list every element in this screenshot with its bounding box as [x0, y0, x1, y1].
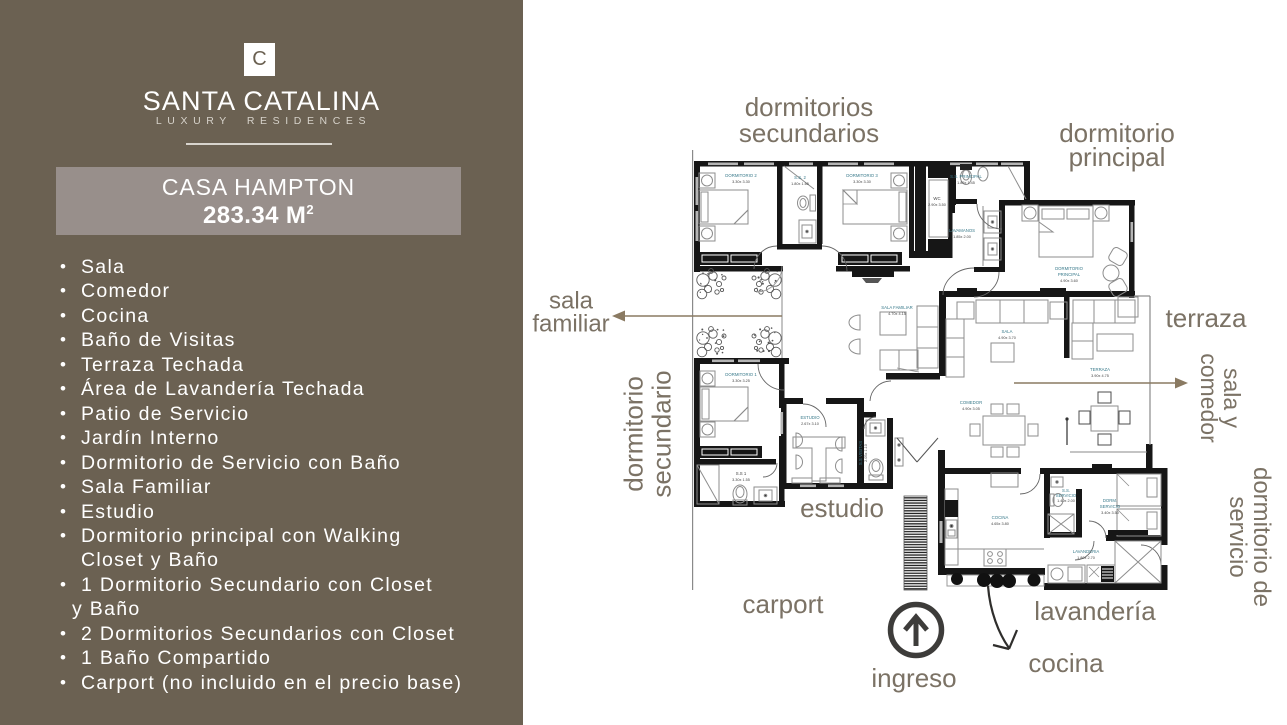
svg-text:S.S. PRINCIPAL: S.S. PRINCIPAL: [950, 174, 982, 179]
svg-text:3.90x 4.75: 3.90x 4.75: [1091, 374, 1109, 378]
svg-text:4.70x 4.15: 4.70x 4.15: [888, 312, 906, 316]
svg-text:WC: WC: [933, 196, 940, 201]
svg-text:3.40x 3.50: 3.40x 3.50: [1101, 511, 1119, 515]
svg-text:DORM.: DORM.: [1103, 498, 1117, 503]
svg-text:SERVICIO: SERVICIO: [1100, 504, 1121, 509]
svg-text:COMEDOR: COMEDOR: [960, 400, 982, 405]
svg-text:SALA FAMILIAR: SALA FAMILIAR: [881, 305, 913, 310]
svg-text:1.85x 2.00: 1.85x 2.00: [953, 235, 971, 239]
svg-text:DORMITORIO 3: DORMITORIO 3: [846, 173, 878, 178]
svg-text:LAVANDERIA: LAVANDERIA: [1073, 549, 1100, 554]
svg-text:DORMITORIO: DORMITORIO: [1055, 266, 1084, 271]
svg-text:SERVICIO: SERVICIO: [1056, 493, 1077, 498]
svg-text:TERRAZA: TERRAZA: [1090, 367, 1110, 372]
svg-text:3.30x 3.25: 3.30x 3.25: [732, 379, 750, 383]
svg-text:4.65x 3.80: 4.65x 3.80: [991, 522, 1009, 526]
svg-text:S.S. 2: S.S. 2: [794, 175, 806, 180]
svg-text:1.80x 2.70: 1.80x 2.70: [1077, 556, 1095, 560]
svg-text:ESTUDIO: ESTUDIO: [800, 415, 820, 420]
svg-text:2.67x 3.10: 2.67x 3.10: [801, 422, 819, 426]
svg-text:COCINA: COCINA: [992, 515, 1009, 520]
svg-text:2.90x 3.50: 2.90x 3.50: [928, 203, 946, 207]
svg-text:4.90x 3.60: 4.90x 3.60: [1060, 279, 1078, 283]
svg-text:4.90x 3.05: 4.90x 3.05: [962, 407, 980, 411]
svg-text:2.05x 1.10: 2.05x 1.10: [864, 444, 868, 462]
svg-text:S.S VISITAS: S.S VISITAS: [858, 441, 863, 465]
svg-text:3.30x 1.55: 3.30x 1.55: [732, 478, 750, 482]
svg-text:1.40x 2.00: 1.40x 2.00: [1057, 499, 1075, 503]
svg-text:DORMITORIO 2: DORMITORIO 2: [725, 173, 757, 178]
svg-text:S.S 1: S.S 1: [736, 471, 747, 476]
svg-text:SALA: SALA: [1002, 329, 1013, 334]
svg-text:1.85x 1.45: 1.85x 1.45: [957, 181, 975, 185]
svg-text:LAVAMANOS: LAVAMANOS: [949, 228, 975, 233]
svg-text:PRINCIPAL: PRINCIPAL: [1058, 272, 1081, 277]
svg-text:3.30x 3.30: 3.30x 3.30: [853, 180, 871, 184]
svg-text:3.30x 3.30: 3.30x 3.30: [732, 180, 750, 184]
svg-text:DORMITORIO 1: DORMITORIO 1: [725, 372, 757, 377]
svg-text:4.90x 3.70: 4.90x 3.70: [998, 336, 1016, 340]
svg-text:1.80x 1.65: 1.80x 1.65: [791, 182, 809, 186]
